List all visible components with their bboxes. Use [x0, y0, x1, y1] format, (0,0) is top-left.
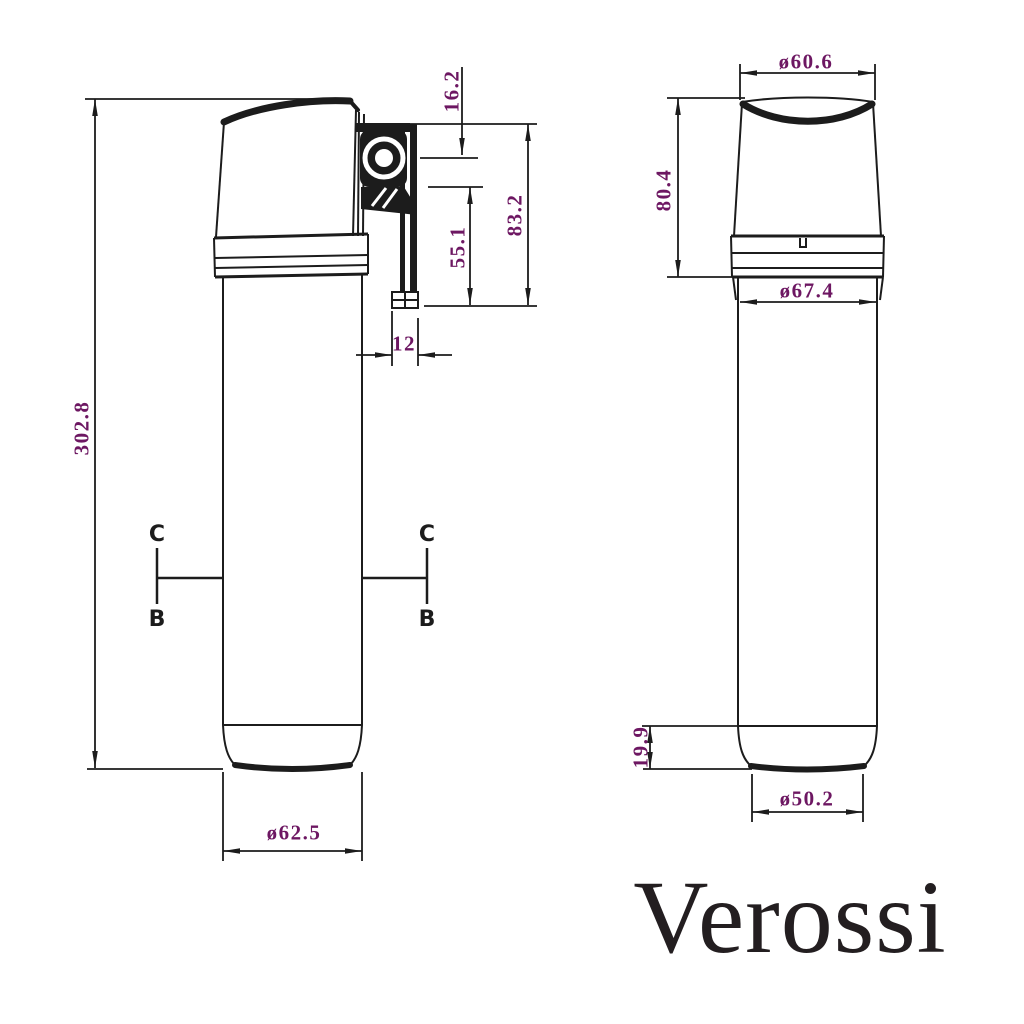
- technical-drawing-canvas: 302.8 16.2 83.2 55.1 12 ø62.5 C B C B ø6…: [0, 0, 1024, 1024]
- dim-head-height: 80.4: [654, 169, 675, 212]
- dim-overall-height: 302.8: [72, 401, 93, 456]
- front-view-dimension-lines: [642, 64, 876, 822]
- dim-base-ring-height: 19.9: [631, 726, 652, 769]
- front-view-outline: [731, 98, 884, 770]
- brand-logo: Verossi: [633, 866, 946, 970]
- section-marker-left-bottom: B: [149, 609, 166, 631]
- section-marker-right-bottom: B: [419, 609, 436, 631]
- side-view-dimension-lines: [85, 67, 537, 861]
- dim-pivot-offset: 16.2: [442, 70, 463, 113]
- section-marker-lines: [157, 548, 427, 604]
- section-marker-right-top: C: [419, 524, 435, 546]
- dim-side-base-diameter: ø62.5: [267, 823, 322, 844]
- dim-bracket-width: 12: [392, 334, 416, 355]
- section-marker-left-top: C: [149, 524, 165, 546]
- dim-bracket-overall-height: 83.2: [505, 194, 526, 237]
- dim-front-base-diameter: ø50.2: [780, 789, 835, 810]
- dim-bracket-lower-height: 55.1: [448, 226, 469, 269]
- dim-top-diameter: ø60.6: [779, 52, 834, 73]
- dim-collar-diameter: ø67.4: [780, 281, 835, 302]
- side-view-bracket: [355, 123, 418, 308]
- side-view-outline: [214, 101, 368, 769]
